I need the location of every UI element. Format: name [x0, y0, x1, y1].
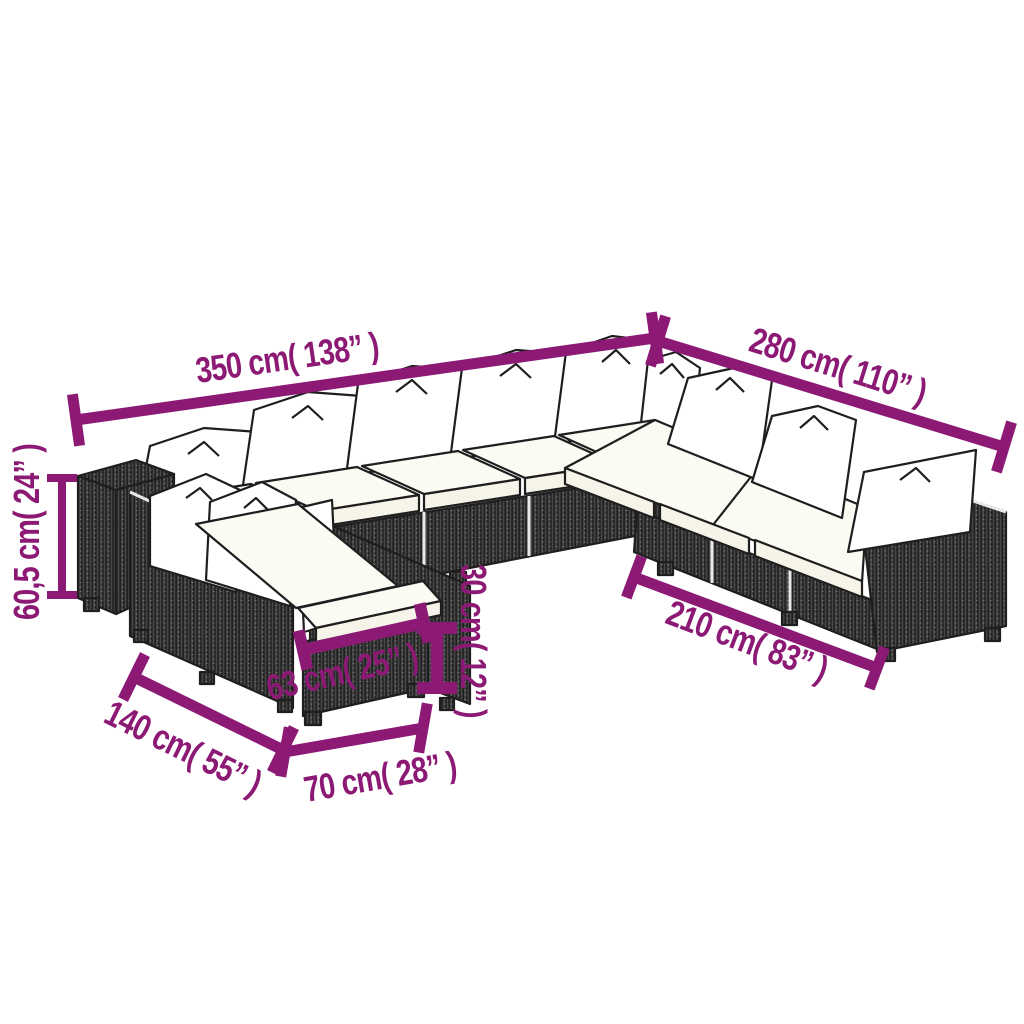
- dim-ottoman-height-label: 30 cm( 12” ): [452, 564, 494, 718]
- dim-height-line: [47, 478, 77, 595]
- dimension-diagram: 350 cm( 138” ) 280 cm( 110” ) 60,5 cm( 2…: [0, 0, 1024, 1024]
- dim-height-label: 60,5 cm( 24” ): [6, 444, 48, 620]
- sofa-line-art: [0, 0, 1024, 1024]
